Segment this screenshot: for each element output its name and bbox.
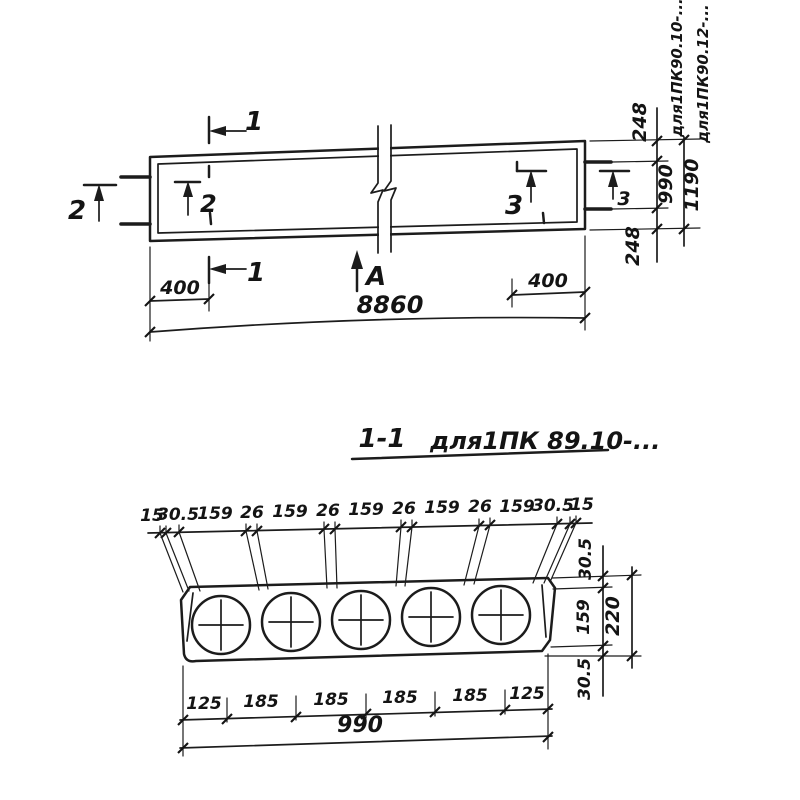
bottom-dim-label: 125: [186, 694, 222, 714]
bottom-dim-label: 125: [509, 684, 545, 704]
dim-label-248-bottom: 248: [622, 226, 644, 266]
series-note-990: для1ПК90.10-...: [668, 0, 686, 138]
arrow-left-icon: [209, 264, 226, 274]
view-arrow-label: А: [364, 262, 386, 292]
top-dim-label: 159: [272, 502, 308, 522]
marker-label: 2: [68, 196, 86, 226]
marker-label: 2: [200, 190, 217, 218]
top-dim-label: 159: [424, 498, 460, 518]
center-cross-icon: [199, 600, 243, 650]
bottom-dim-label: 185: [313, 690, 349, 710]
section-marker-3-inner: 3: [505, 162, 546, 223]
plan-view: 1 1 2 2: [68, 0, 712, 341]
plan-right-dimensions: 248 990 248 1190 для1ПК90.10-... для1ПК9…: [590, 0, 712, 266]
dim-label-159: 159: [574, 599, 594, 635]
leader-line: [324, 522, 327, 588]
technical-drawing: 1 1 2 2: [0, 0, 800, 800]
dim-label-220: 220: [602, 596, 624, 636]
void-circle-5: [472, 586, 530, 644]
marker-label: 1: [247, 258, 265, 288]
dim-line-400-left: [150, 299, 209, 301]
top-dim-label: 159: [197, 504, 233, 524]
drawing-sheet: 1 1 2 2: [0, 0, 800, 800]
center-cross-icon: [269, 597, 313, 647]
arrow-up-icon: [94, 184, 104, 201]
section-title: 1-1 для1ПК 89.10-...: [352, 424, 660, 459]
void-circle-1: [192, 596, 250, 654]
dim-label-400-right: 400: [527, 270, 568, 292]
dim-label-width: 990: [337, 713, 383, 738]
dim-label-1190: 1190: [681, 159, 703, 212]
series-note-1190: для1ПК90.12-...: [694, 4, 712, 144]
section-view: 1-1 для1ПК 89.10-...: [140, 424, 660, 756]
dim-line-overall: [150, 318, 585, 332]
right-edge-groove: [542, 585, 546, 637]
top-dim-label: 26: [240, 503, 264, 523]
dim-label-305-top: 30.5: [576, 538, 596, 580]
leader-line: [335, 522, 337, 588]
void-circle-3: [332, 591, 390, 649]
leader-line: [179, 525, 200, 591]
top-dim-label: 30.5: [157, 505, 199, 525]
section-marker-1-top: 1: [209, 107, 263, 143]
dim-chain-line: [148, 523, 592, 533]
leader-line: [257, 524, 268, 589]
top-dim-label: 15: [570, 495, 594, 515]
top-dim-label: 30.5: [532, 496, 574, 516]
dim-label-400-left: 400: [159, 277, 200, 299]
top-dim-label: 26: [468, 497, 492, 517]
section-marker-1-bottom: 1: [209, 257, 265, 288]
marker-label: 3: [505, 191, 523, 221]
cut-line-dash-bottom: [543, 213, 544, 223]
top-dim-label: 159: [348, 500, 384, 520]
bottom-dim-label: 185: [382, 688, 418, 708]
dim-label-305-bottom: 30.5: [575, 658, 595, 700]
void-circle-2: [262, 593, 320, 651]
arrow-left-icon: [209, 126, 226, 136]
void-circle-4: [402, 588, 460, 646]
dim-line-400-right: [512, 292, 585, 295]
section-marker-3-outer: 3: [600, 170, 631, 210]
arrow-up-icon: [183, 181, 193, 197]
dim-label-990: 990: [655, 164, 677, 204]
marker-label: 3: [617, 188, 630, 210]
view-arrow-a: А: [351, 250, 386, 292]
center-cross-icon: [409, 592, 453, 642]
center-cross-icon: [479, 590, 523, 640]
arrow-up-icon: [526, 170, 536, 187]
ext-line: [612, 161, 668, 162]
ext-line: [552, 575, 641, 578]
cut-line-dash-bottom: [210, 213, 211, 224]
arrow-up-icon: [351, 250, 363, 269]
center-cross-icon: [339, 595, 383, 645]
section-marker-2-inner: 2: [175, 166, 217, 224]
section-body: [181, 578, 555, 661]
arrow-up-icon: [608, 170, 618, 187]
section-bottom-dimensions: 125 185 185 185 185 125 990: [178, 654, 553, 756]
dim-label-248-top: 248: [629, 102, 651, 142]
top-dim-label: 159: [499, 497, 535, 517]
section-title-mark: 1-1: [359, 424, 406, 454]
section-title-note: для1ПК 89.10-...: [429, 427, 660, 455]
bottom-dim-label: 185: [452, 686, 488, 706]
marker-label: 1: [245, 107, 263, 137]
top-dim-label: 26: [316, 501, 340, 521]
bottom-dim-label: 185: [243, 692, 279, 712]
top-dim-label: 26: [392, 499, 416, 519]
section-right-dimensions: 30.5 159 30.5 220: [545, 538, 641, 700]
section-marker-2-outer: 2: [68, 184, 116, 226]
dim-label-overall: 8860: [357, 291, 424, 319]
